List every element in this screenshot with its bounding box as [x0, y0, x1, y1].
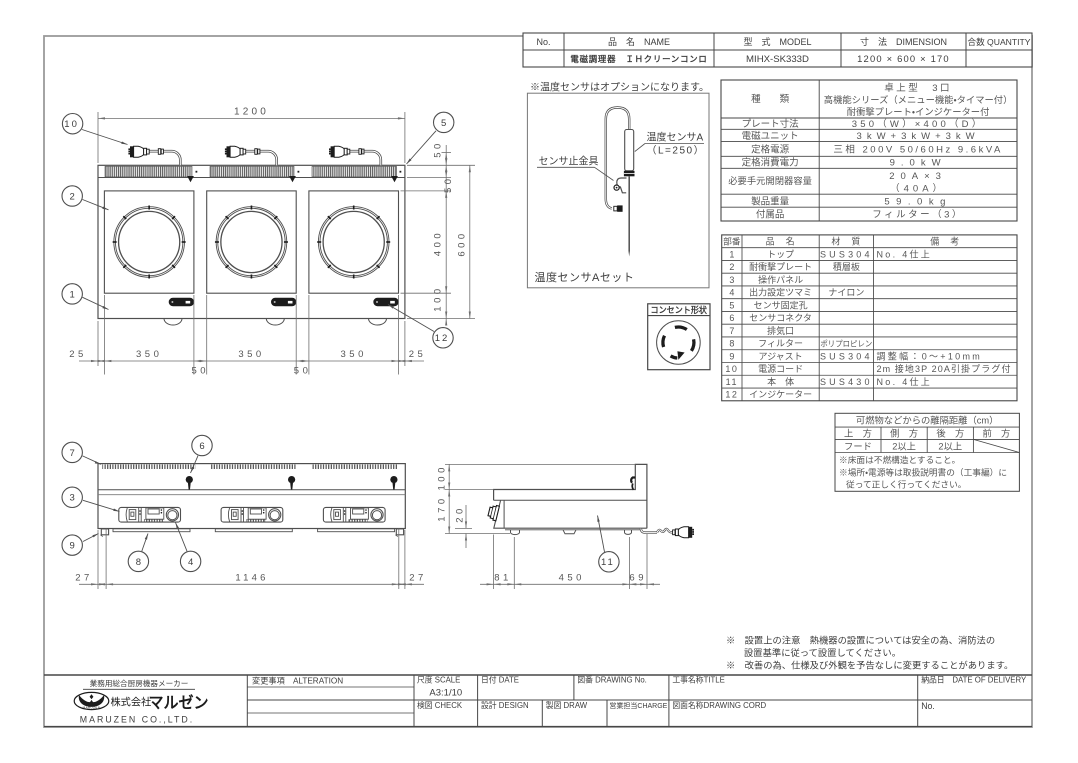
svg-text:部番: 部番	[723, 236, 741, 247]
svg-text:※ 改善の為、仕様及び外観を予告なしに変更することがあります: ※ 改善の為、仕様及び外観を予告なしに変更することがあります。	[726, 659, 1013, 670]
svg-text:※ 設置上の注意 熱機器の設置については安全の為、消防法の: ※ 設置上の注意 熱機器の設置については安全の為、消防法の	[726, 634, 995, 645]
svg-text:6: 6	[729, 313, 734, 323]
svg-text:製図 DRAW: 製図 DRAW	[546, 700, 588, 710]
svg-text:1200: 1200	[234, 107, 269, 118]
svg-text:工事名称TITLE: 工事名称TITLE	[672, 675, 724, 685]
svg-text:1: 1	[729, 249, 734, 259]
svg-text:センサ固定孔: センサ固定孔	[754, 300, 808, 310]
svg-text:上 方: 上 方	[844, 427, 872, 438]
svg-text:耐衝撃プレート: 耐衝撃プレート	[749, 261, 812, 272]
svg-text:4: 4	[188, 557, 193, 568]
svg-text:排気口: 排気口	[767, 325, 794, 336]
svg-text:温度センサA: 温度センサA	[647, 131, 704, 144]
svg-text:20A×3: 20A×3	[889, 171, 947, 182]
svg-text:3: 3	[729, 275, 734, 285]
svg-text:SUS304: SUS304	[820, 249, 873, 259]
svg-text:可燃物などからの離隔距離（cm）: 可燃物などからの離隔距離（cm）	[856, 415, 999, 426]
svg-text:25: 25	[69, 349, 87, 360]
svg-text:10: 10	[725, 364, 738, 374]
svg-text:No.: No.	[536, 37, 550, 47]
svg-text:12: 12	[725, 390, 738, 400]
svg-text:備 考: 備 考	[930, 236, 960, 247]
svg-text:50: 50	[433, 140, 444, 158]
svg-text:3: 3	[70, 493, 75, 504]
svg-text:ポリプロピレン: ポリプロピレン	[820, 340, 872, 349]
svg-text:トップ: トップ	[767, 249, 794, 259]
svg-text:MIHX-SK333D: MIHX-SK333D	[746, 54, 809, 65]
svg-text:2以上: 2以上	[892, 441, 916, 451]
svg-text:※温度センサはオプションになります。: ※温度センサはオプションになります。	[530, 81, 709, 94]
svg-text:調整幅：0〜+10mm: 調整幅：0〜+10mm	[877, 350, 983, 361]
svg-text:50: 50	[192, 366, 210, 377]
svg-text:フィルター（3）: フィルター（3）	[872, 209, 964, 221]
svg-text:170: 170	[437, 495, 448, 521]
svg-text:営業担当CHARGE: 営業担当CHARGE	[609, 701, 667, 710]
svg-text:9: 9	[729, 351, 734, 361]
svg-text:定格電源: 定格電源	[751, 143, 790, 155]
svg-text:設置基準に従って設置してください。: 設置基準に従って設置してください。	[744, 647, 901, 658]
svg-text:1146: 1146	[235, 573, 268, 584]
svg-text:6: 6	[199, 441, 204, 452]
svg-text:ナイロン: ナイロン	[828, 288, 864, 298]
svg-text:※場所・電源等は取扱説明書の（工事編）に: ※場所・電源等は取扱説明書の（工事編）に	[839, 467, 1007, 478]
svg-text:SUS430: SUS430	[820, 377, 873, 387]
svg-text:A3:1/10: A3:1/10	[429, 688, 462, 699]
svg-text:検図 CHECK: 検図 CHECK	[417, 700, 463, 710]
svg-text:27: 27	[75, 573, 93, 584]
svg-text:前 方: 前 方	[982, 427, 1010, 438]
svg-text:卓上型 3口: 卓上型 3口	[884, 82, 952, 94]
svg-text:出力設定ツマミ: 出力設定ツマミ	[749, 287, 812, 298]
svg-text:積層板: 積層板	[833, 261, 860, 272]
svg-text:2m 接地3P 20A引掛プラグ付: 2m 接地3P 20A引掛プラグ付	[877, 363, 1012, 374]
svg-text:品 名 NAME: 品 名 NAME	[608, 36, 670, 47]
svg-text:プレート寸法: プレート寸法	[742, 118, 800, 130]
svg-text:納品日 DATE OF DELIVERY: 納品日 DATE OF DELIVERY	[921, 675, 1027, 685]
svg-text:温度センサAセット: 温度センサAセット	[535, 271, 635, 284]
svg-text:11: 11	[601, 557, 615, 568]
svg-text:5: 5	[729, 300, 734, 310]
svg-text:400: 400	[433, 230, 444, 256]
svg-text:※床面は不燃構造とすること。: ※床面は不燃構造とすること。	[839, 454, 960, 465]
svg-text:7: 7	[70, 448, 75, 459]
svg-text:寸 法 DIMENSION: 寸 法 DIMENSION	[860, 36, 947, 47]
svg-text:製品重量: 製品重量	[751, 195, 790, 207]
svg-text:合数 QUANTITY: 合数 QUANTITY	[967, 36, 1030, 47]
svg-text:9.0kW: 9.0kW	[890, 158, 947, 169]
svg-text:25: 25	[409, 349, 427, 360]
svg-text:型 式 MODEL: 型 式 MODEL	[743, 36, 811, 47]
svg-text:350: 350	[341, 349, 367, 360]
svg-text:インジケーター: インジケーター	[749, 390, 812, 400]
svg-text:電磁調理器 ＩＨクリーンコンロ: 電磁調理器 ＩＨクリーンコンロ	[570, 54, 707, 64]
svg-text:高機能シリーズ（メニュー機能・タイマー付）: 高機能シリーズ（メニュー機能・タイマー付）	[824, 94, 1013, 105]
svg-text:1: 1	[70, 289, 75, 300]
svg-text:マルゼン: マルゼン	[149, 693, 209, 712]
svg-text:11: 11	[726, 377, 738, 387]
svg-text:10: 10	[64, 119, 79, 130]
svg-text:フード: フード	[844, 441, 872, 451]
svg-text:操作パネル: 操作パネル	[758, 274, 803, 285]
svg-text:耐衝撃プレート・インジケーター付: 耐衝撃プレート・インジケーター付	[847, 106, 990, 117]
svg-text:日付 DATE: 日付 DATE	[481, 675, 519, 685]
svg-text:59.0kg: 59.0kg	[884, 196, 952, 207]
svg-text:2: 2	[729, 262, 734, 272]
svg-text:600: 600	[456, 230, 467, 256]
svg-text:付属品: 付属品	[756, 210, 785, 221]
svg-text:フィルター: フィルター	[758, 339, 803, 349]
svg-text:No. 4仕上: No. 4仕上	[877, 376, 933, 387]
svg-text:図番 DRAWING No.: 図番 DRAWING No.	[577, 675, 646, 685]
svg-text:7: 7	[729, 326, 734, 336]
svg-text:3kW+3kW+3kW: 3kW+3kW+3kW	[857, 131, 980, 142]
svg-text:必要手元開閉器容量: 必要手元開閉器容量	[728, 175, 812, 186]
svg-text:1200 × 600 × 170: 1200 × 600 × 170	[857, 53, 950, 64]
svg-text:コンセント形状: コンセント形状	[651, 304, 708, 315]
svg-text:業務用総合厨房機器メーカー: 業務用総合厨房機器メーカー	[90, 678, 189, 688]
svg-text:株式会社: 株式会社	[111, 696, 152, 709]
svg-text:センサコネクタ: センサコネクタ	[749, 313, 812, 323]
svg-text:350: 350	[136, 349, 162, 360]
svg-text:（L=250）: （L=250）	[647, 145, 706, 157]
svg-text:アジャスト: アジャスト	[758, 351, 802, 361]
svg-text:50: 50	[294, 366, 312, 377]
svg-text:350: 350	[238, 349, 264, 360]
svg-text:69: 69	[629, 573, 647, 584]
svg-text:8: 8	[729, 339, 734, 349]
svg-text:450: 450	[559, 573, 585, 584]
svg-text:50: 50	[443, 175, 454, 193]
svg-text:三相 200V 50/60Hz 9.6kVA: 三相 200V 50/60Hz 9.6kVA	[833, 143, 1002, 155]
svg-text:20: 20	[454, 505, 465, 523]
svg-text:9: 9	[70, 541, 75, 552]
svg-text:品 名: 品 名	[766, 236, 796, 247]
svg-text:100: 100	[437, 464, 448, 490]
svg-text:27: 27	[409, 573, 427, 584]
svg-text:後 方: 後 方	[936, 427, 964, 438]
svg-text:MARUZEN CO.,LTD.: MARUZEN CO.,LTD.	[80, 714, 194, 724]
svg-text:図面名称DRAWING CORD: 図面名称DRAWING CORD	[672, 700, 766, 710]
svg-text:8: 8	[136, 557, 141, 568]
svg-text:設計 DESIGN: 設計 DESIGN	[481, 700, 529, 710]
svg-text:種 類: 種 類	[751, 93, 790, 105]
svg-text:5: 5	[441, 118, 446, 129]
svg-text:電源コード: 電源コード	[758, 364, 803, 374]
svg-text:350（W）×400（D）: 350（W）×400（D）	[852, 118, 985, 130]
svg-text:SUS304: SUS304	[820, 351, 873, 361]
svg-text:No. 4仕上: No. 4仕上	[877, 248, 933, 259]
svg-text:2: 2	[70, 191, 75, 202]
svg-text:No.: No.	[921, 701, 935, 711]
svg-text:定格消費電力: 定格消費電力	[742, 157, 799, 169]
svg-text:従って正しく行ってください。: 従って正しく行ってください。	[846, 479, 967, 490]
svg-text:材 質: 材 質	[831, 236, 861, 247]
svg-text:12: 12	[435, 333, 450, 344]
svg-text:センサ止金具: センサ止金具	[539, 155, 599, 168]
svg-text:本 体: 本 体	[767, 376, 794, 387]
svg-text:MARUZEN: MARUZEN	[83, 706, 101, 710]
svg-text:尺度 SCALE: 尺度 SCALE	[417, 675, 460, 685]
svg-text:（40A）: （40A）	[890, 183, 946, 195]
svg-text:2以上: 2以上	[938, 441, 962, 451]
svg-text:変更事項 ALTERATION: 変更事項 ALTERATION	[252, 676, 343, 686]
svg-text:4: 4	[729, 288, 734, 298]
svg-text:100: 100	[433, 285, 444, 311]
svg-text:側 方: 側 方	[890, 427, 918, 438]
svg-text:電磁ユニット: 電磁ユニット	[742, 130, 799, 142]
svg-text:81: 81	[494, 573, 512, 584]
